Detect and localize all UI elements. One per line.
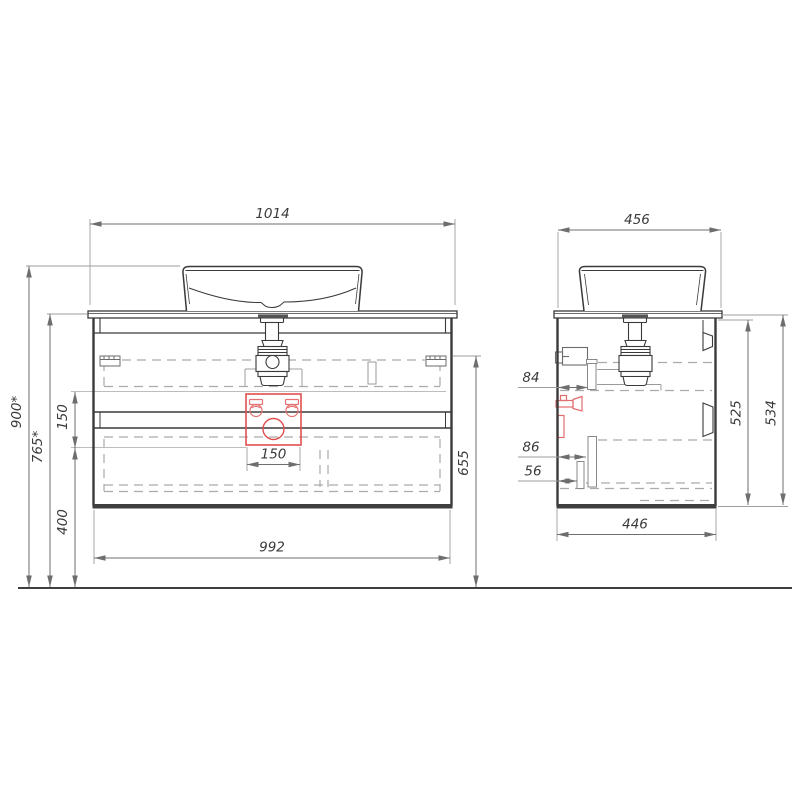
water-valves <box>250 400 299 417</box>
dim-opening-width: 150 <box>261 447 287 463</box>
counter-drain-cutout <box>258 314 288 317</box>
angle-valve-side <box>556 396 582 438</box>
drawer-front-clip <box>703 403 713 437</box>
counter-drain-cutout <box>622 314 648 317</box>
drawing-canvas: 1014 992 900* 765* 150 400 655 150 456 5… <box>0 0 800 800</box>
dim-overall-height: 900* <box>9 395 25 428</box>
wall-bracket-side <box>556 348 588 366</box>
siphon-side <box>619 318 652 386</box>
drawer-bracket-front <box>368 362 376 384</box>
dim-offset-mid: 86 <box>522 440 539 456</box>
dim-opening-height: 150 <box>55 404 71 430</box>
basin-front <box>183 267 362 312</box>
siphon-front <box>256 318 289 386</box>
basin-side <box>579 267 705 312</box>
dim-total-height: 534 <box>764 400 780 426</box>
dim-front-top-width: 1014 <box>255 206 289 222</box>
drawer-front-clip <box>703 333 713 351</box>
drain-hole-marker <box>263 419 284 440</box>
dim-offset-bottom: 56 <box>524 464 541 480</box>
front-view <box>71 267 457 509</box>
dim-under-clearance: 400 <box>55 509 71 535</box>
countertop-side <box>554 311 722 318</box>
vanity-dimension-drawing: 1014 992 900* 765* 150 400 655 150 456 5… <box>0 0 800 800</box>
dim-carcass-height: 525 <box>729 400 745 426</box>
dim-front-bottom-width: 992 <box>259 540 285 556</box>
dim-drawer-zone-height: 655 <box>456 450 472 476</box>
dimension-labels: 1014 992 900* 765* 150 400 655 150 456 5… <box>9 206 780 556</box>
drawer-rails-side <box>577 360 661 489</box>
countertop-front <box>88 311 457 318</box>
dim-side-top-depth: 456 <box>624 212 650 228</box>
dim-side-bottom-depth: 446 <box>622 517 648 533</box>
dim-counter-height: 765* <box>30 430 46 463</box>
dim-offset-top: 84 <box>522 370 539 386</box>
